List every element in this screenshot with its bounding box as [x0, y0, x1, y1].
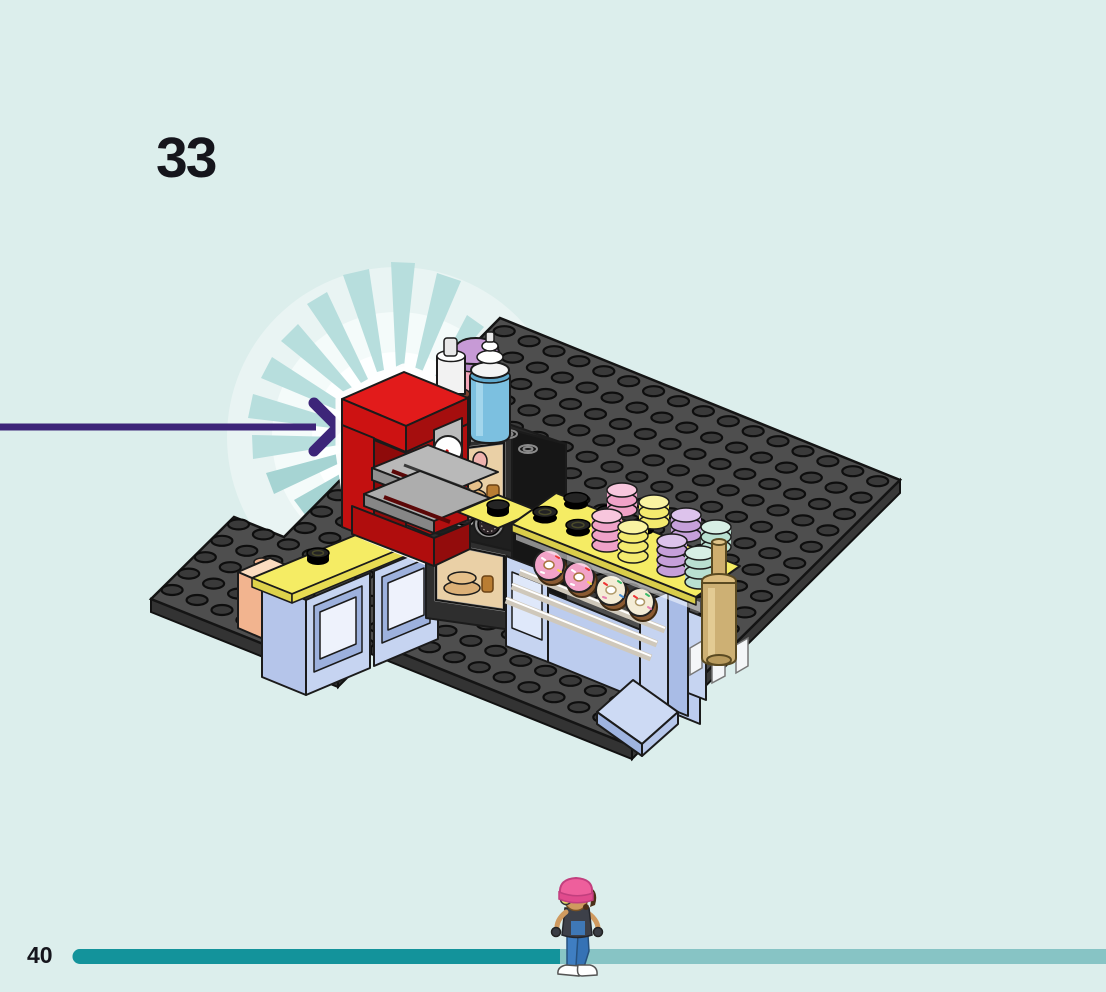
progress-overlay	[0, 0, 1106, 992]
mascot-beanie	[559, 878, 593, 903]
page-number: 40	[27, 944, 53, 967]
mascot-legs	[567, 934, 589, 967]
mascot-shoes	[558, 965, 597, 976]
instruction-page: 33	[0, 0, 1106, 992]
mascot-overall-bib	[571, 921, 585, 935]
progress-completed	[73, 949, 561, 964]
